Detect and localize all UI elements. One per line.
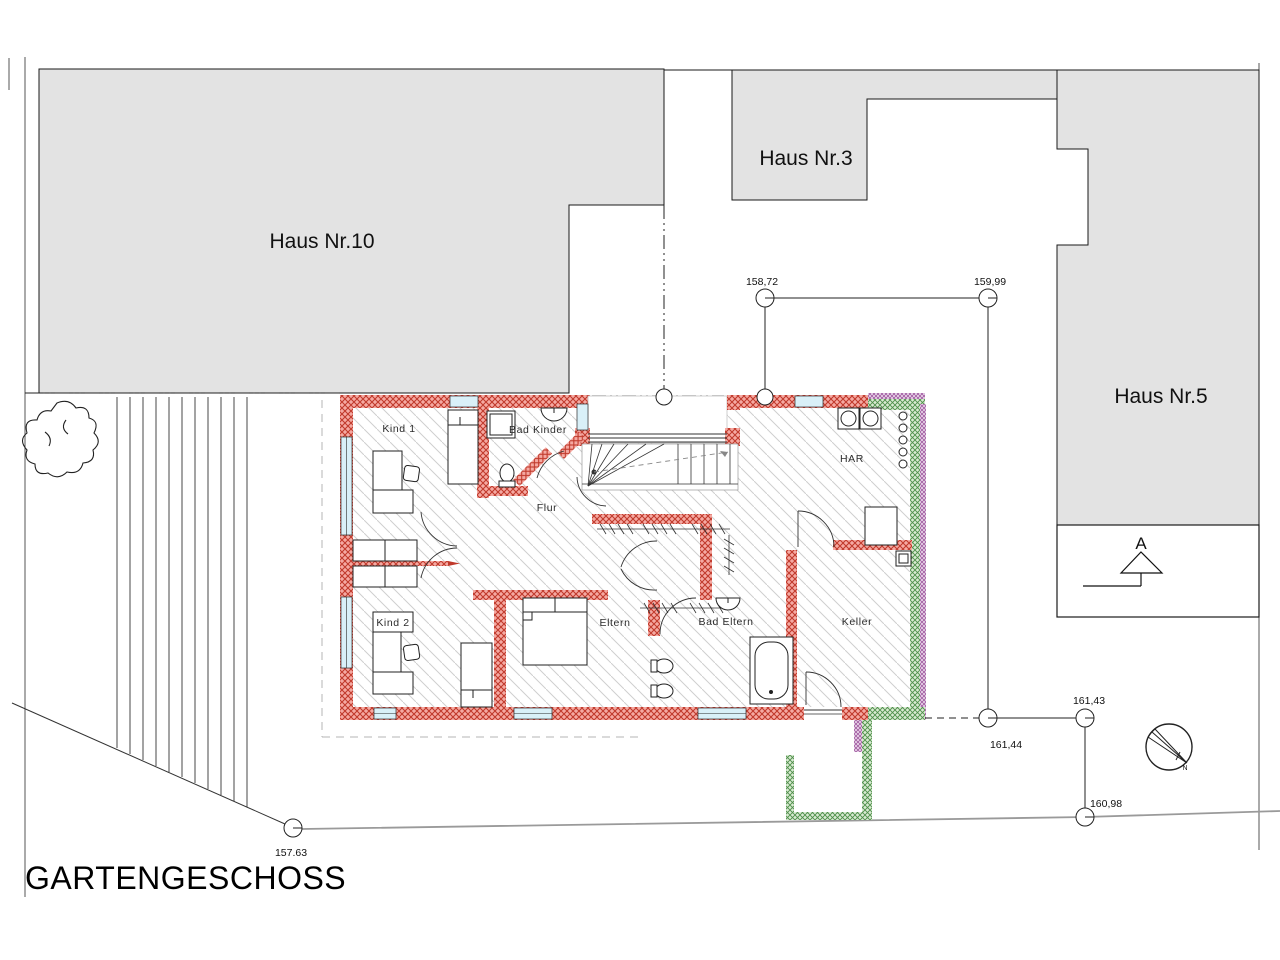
room-label-kind1: Kind 1	[382, 423, 415, 435]
north-arrow-icon	[1146, 724, 1192, 770]
elevation-marker-161-44	[925, 709, 1076, 727]
room-label-har: HAR	[840, 453, 864, 465]
embankment-hatch	[117, 397, 247, 807]
stair-recess	[575, 395, 740, 446]
plan-canvas: Haus Nr.10 Haus Nr.3 Haus Nr.5 Kind 1 Ba…	[0, 0, 1280, 960]
elevation-marker-157-63	[284, 819, 302, 837]
slope-line	[12, 703, 285, 824]
elevation-marker-159-99	[979, 289, 997, 709]
elevation-marker-160-98	[1076, 808, 1094, 826]
elevation-label-161-44: 161,44	[990, 739, 1022, 751]
elevation-label-160-98: 160,98	[1090, 798, 1122, 810]
section-label-a: A	[1135, 534, 1147, 553]
house-block-nr3	[732, 70, 1057, 200]
house-label-nr3: Haus Nr.3	[759, 147, 852, 170]
light-well	[786, 720, 872, 820]
house-label-nr5: Haus Nr.5	[1114, 385, 1207, 408]
north-label: N	[1182, 765, 1187, 772]
room-label-kind2: Kind 2	[376, 617, 409, 629]
room-label-bad-kinder: Bad Kinder	[509, 424, 567, 436]
elevation-label-161-43: 161,43	[1073, 695, 1105, 707]
elevation-label-159-99: 159,99	[974, 276, 1006, 288]
page-title: GARTENGESCHOSS	[25, 860, 346, 896]
tree-icon	[23, 401, 99, 476]
elevation-label-158-72: 158,72	[746, 276, 778, 288]
room-label-eltern: Eltern	[599, 617, 630, 629]
room-label-keller: Keller	[842, 616, 872, 628]
elevation-marker-161-43	[1076, 709, 1094, 808]
elevation-label-157-63: 157.63	[275, 847, 307, 859]
room-label-flur: Flur	[537, 502, 557, 514]
building	[340, 393, 926, 820]
room-label-bad-eltern: Bad Eltern	[698, 616, 753, 628]
keller-door-sill	[804, 707, 842, 720]
elevation-marker-158-72	[756, 289, 979, 389]
stairs	[582, 444, 738, 490]
house-block-nr5	[1057, 70, 1259, 525]
floorplan-drawing: Haus Nr.10 Haus Nr.3 Haus Nr.5 Kind 1 Ba…	[0, 0, 1280, 960]
house-label-nr10: Haus Nr.10	[269, 230, 374, 253]
window	[577, 404, 588, 430]
